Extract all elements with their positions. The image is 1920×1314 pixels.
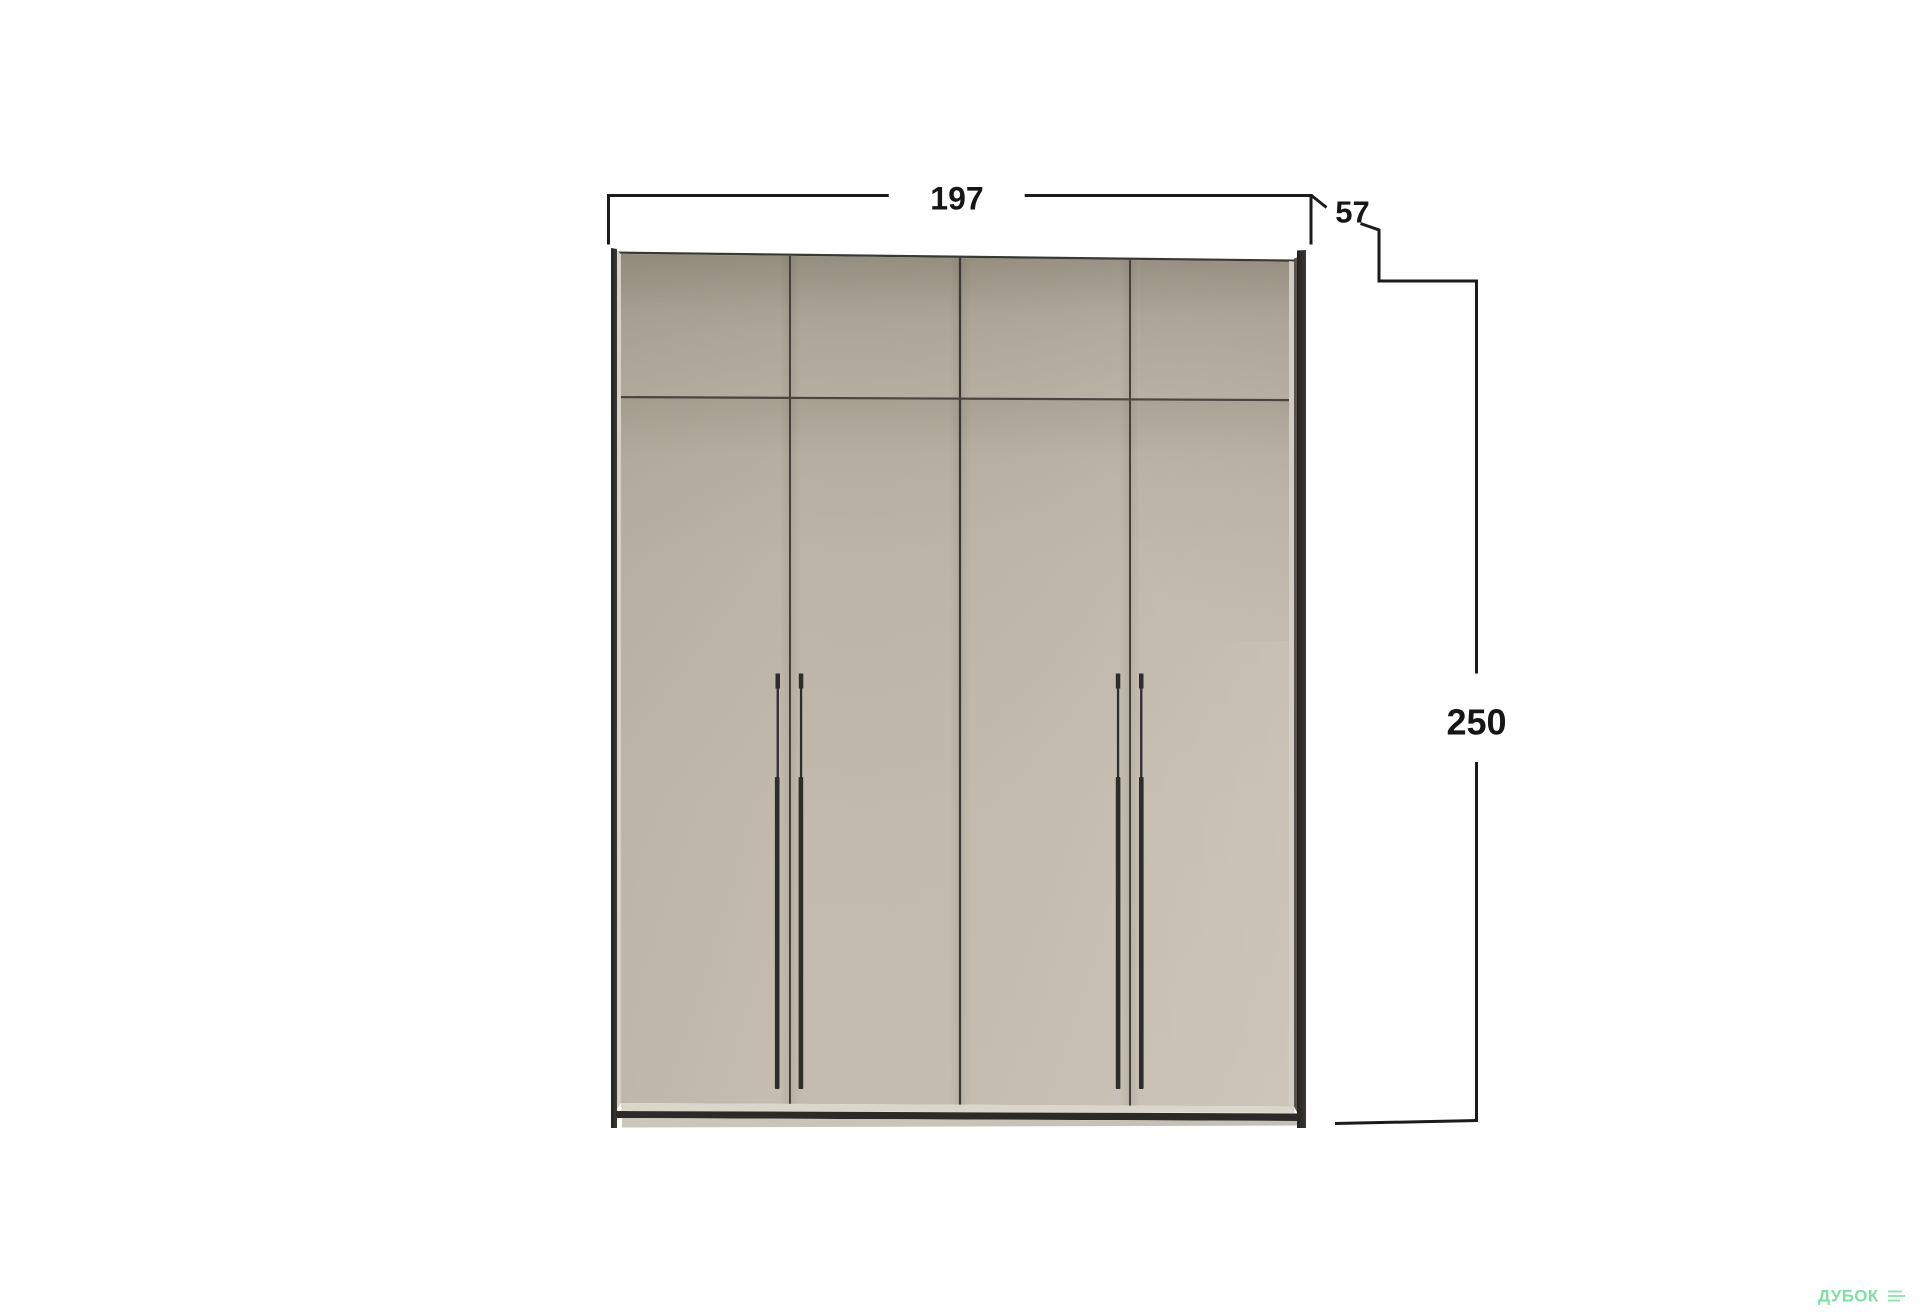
svg-text:57: 57 xyxy=(1335,195,1369,230)
svg-text:ДУБОК: ДУБОК xyxy=(1818,1287,1879,1306)
svg-text:250: 250 xyxy=(1446,702,1506,743)
svg-text:197: 197 xyxy=(930,181,983,217)
